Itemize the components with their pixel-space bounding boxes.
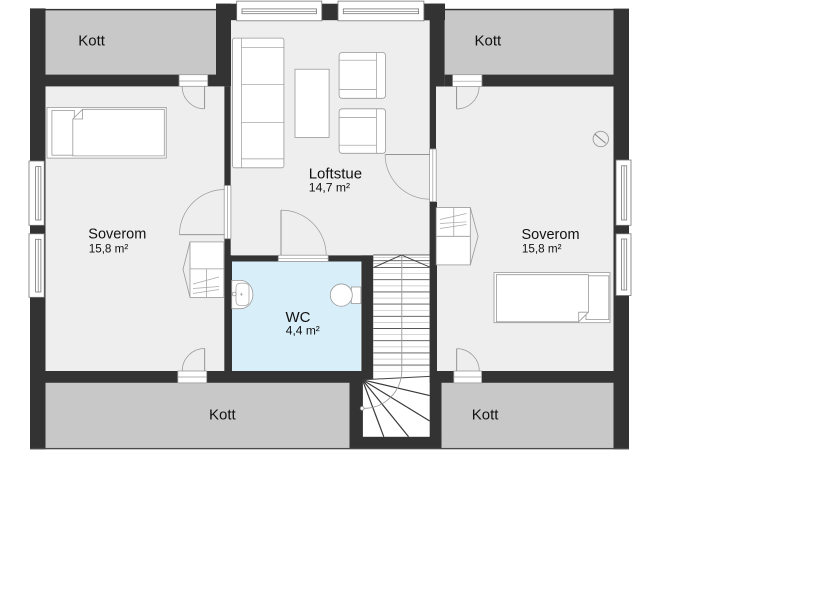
svg-text:15,8 m²: 15,8 m² (522, 242, 562, 255)
svg-text:Soverom: Soverom (88, 227, 146, 243)
svg-text:Kott: Kott (475, 33, 503, 50)
svg-text:Soverom: Soverom (522, 227, 580, 243)
svg-text:Kott: Kott (78, 33, 106, 50)
svg-text:15,8 m²: 15,8 m² (89, 243, 129, 256)
svg-text:Kott: Kott (472, 407, 500, 424)
svg-text:4,4 m²: 4,4 m² (286, 324, 320, 338)
svg-text:Kott: Kott (209, 407, 237, 424)
svg-text:14,7 m²: 14,7 m² (309, 181, 350, 195)
